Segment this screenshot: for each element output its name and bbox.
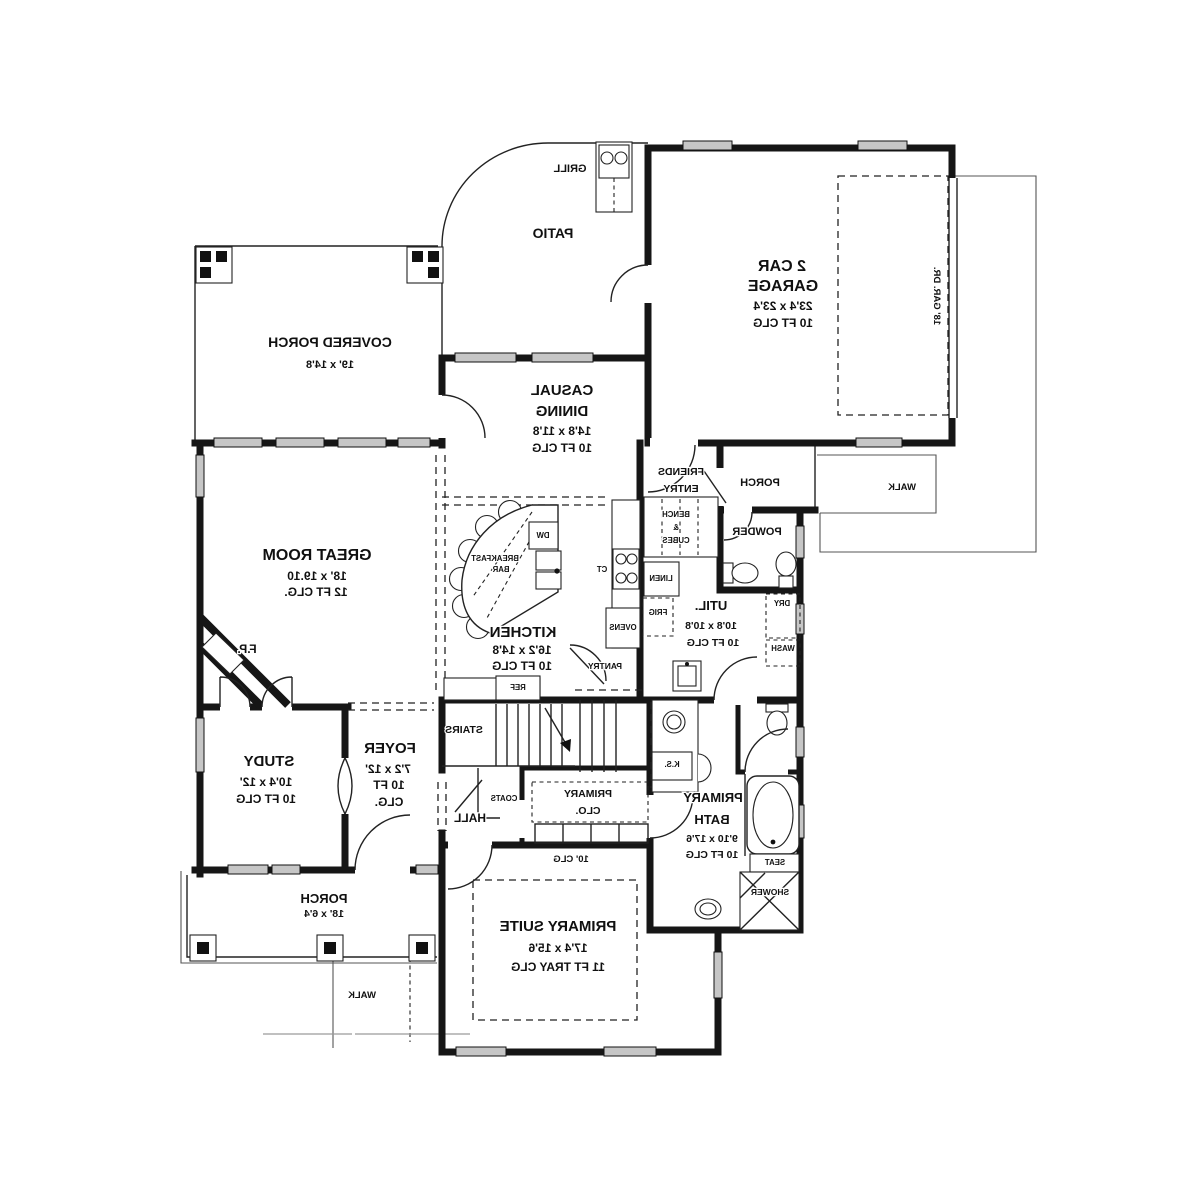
pedestal-sink [776, 552, 796, 576]
primary-bath-label2: BATH [694, 812, 729, 827]
knee-space-label: K.S. [664, 760, 679, 769]
seat-label: SEAT [765, 858, 785, 867]
dining-clg: 10 FT CLG [532, 441, 592, 455]
toilet [732, 563, 758, 583]
ovens-label: OVENS [609, 623, 636, 632]
dining-label: CASUAL [531, 382, 594, 399]
util-clg: 10 FT CLG [687, 637, 740, 649]
front-porch-dims: 18' x 6'4 [304, 908, 344, 920]
dry-label: DRY [773, 599, 790, 608]
grill [596, 142, 632, 212]
garage-label: 2 CAR [758, 258, 806, 275]
dining-dims: 14'8 x 11'8 [532, 424, 591, 438]
primary-clo-label: PRIMARY [564, 788, 612, 800]
kitchen-dims: 16'2 x 14'8 [492, 643, 551, 657]
kitchen-sink [536, 551, 561, 570]
front-porch-label: PORCH [301, 891, 348, 906]
floor-plan-drawing: 2 CAR GARAGE 23'4 x 23'4 10 FT CLG 18' G… [0, 0, 1200, 1200]
garage-dims: 23'4 x 23'4 [753, 299, 812, 313]
bench-label: BENCH [662, 510, 690, 519]
foyer-clg2: CLG. [375, 795, 404, 809]
porch-columns [190, 247, 443, 961]
primary-bath-dims: 9'10 x 17'6 [686, 833, 738, 845]
dw-label: DW [536, 531, 550, 540]
floor-plan-page: 2 CAR GARAGE 23'4 x 23'4 10 FT CLG 18' G… [0, 0, 1200, 1200]
grill-label: GRILL [553, 163, 586, 175]
porch-right-label: PORCH [740, 477, 780, 489]
fireplace-label: F.P. [237, 642, 256, 656]
suite-perimeter-clg: 10' CLG [553, 854, 589, 865]
frig-label: FRIG [649, 608, 668, 617]
kitchen-clg: 10 FT CLG [492, 659, 552, 673]
garage-clg: 10 FT CLG [753, 316, 813, 330]
covered-porch-label: COVERED PORCH [268, 334, 392, 350]
shower-label: SHOWER [751, 887, 789, 897]
fireplace [200, 617, 288, 705]
great-room-clg: 12 FT CLG. [284, 585, 347, 599]
ref-label: REF [510, 683, 526, 692]
kitchen-label: KITCHEN [490, 624, 557, 641]
vanity-sink [698, 754, 711, 782]
foyer-dims: 7'2 x 12' [365, 762, 411, 776]
great-room-label: GREAT ROOM [262, 547, 371, 564]
primary-suite-clg: 11 FT TRAY CLG [511, 960, 605, 974]
front-walk-label: WALK [348, 990, 376, 1001]
breakfast-bar-label: BREAKFAST [471, 554, 519, 563]
study-label: STUDY [244, 753, 295, 770]
powder-fixtures [723, 552, 796, 588]
covered-porch-dims: 19' x 14'8 [306, 359, 354, 371]
garage-label2: GARAGE [748, 278, 819, 295]
friends-entry-label: FRIENDS [658, 466, 704, 478]
primary-clo-label2: CLO. [575, 805, 600, 817]
study-dims: 10'4 x 12' [240, 775, 293, 789]
coats-label: COATS [491, 794, 518, 803]
primary-suite-label: PRIMARY SUITE [500, 918, 617, 935]
study-clg: 10 FT CLG [236, 792, 296, 806]
cooktop-label: CT [597, 565, 608, 574]
room-labels: 2 CAR GARAGE 23'4 x 23'4 10 FT CLG 18' G… [236, 163, 942, 1001]
stairs-label: STAIRS [445, 724, 483, 736]
garage-door-label: 18' GAR. DR. [931, 267, 942, 325]
foyer-clg: 10 FT [373, 778, 405, 792]
wash-label: WASH [771, 644, 795, 653]
faucet [554, 568, 559, 573]
util-label: UTIL. [695, 598, 728, 613]
toilet [767, 711, 787, 735]
util-dims: 10'8 x 10'8 [685, 620, 737, 632]
tub [753, 782, 793, 848]
bench-label3: CUBES [662, 536, 689, 545]
primary-suite-dims: 17'4 x 15'6 [528, 941, 587, 955]
foyer-label: FOYER [364, 740, 416, 757]
stairs [442, 700, 616, 772]
bench-cubes [644, 497, 718, 557]
breakfast-bar-label2: BAR [492, 565, 509, 574]
dining-label2: DINING [536, 403, 589, 420]
primary-bath-clg: 10 FT CLG [686, 849, 739, 861]
patio-label: PATIO [533, 225, 574, 241]
pantry-label: PANTRY [588, 661, 622, 671]
right-walk-label: WALK [888, 482, 916, 493]
powder-label: POWDER [732, 526, 782, 538]
closet-shelves [455, 768, 648, 843]
friends-entry-label2: ENTRY [663, 483, 698, 495]
linen-label: LINEN [649, 574, 673, 583]
great-room-dims: 18' x 19.10 [287, 569, 347, 583]
bench-label2: & [673, 523, 679, 532]
primary-bath-label: PRIMARY [683, 790, 743, 805]
frig-space [643, 598, 673, 636]
hall-label: HALL [454, 811, 486, 825]
